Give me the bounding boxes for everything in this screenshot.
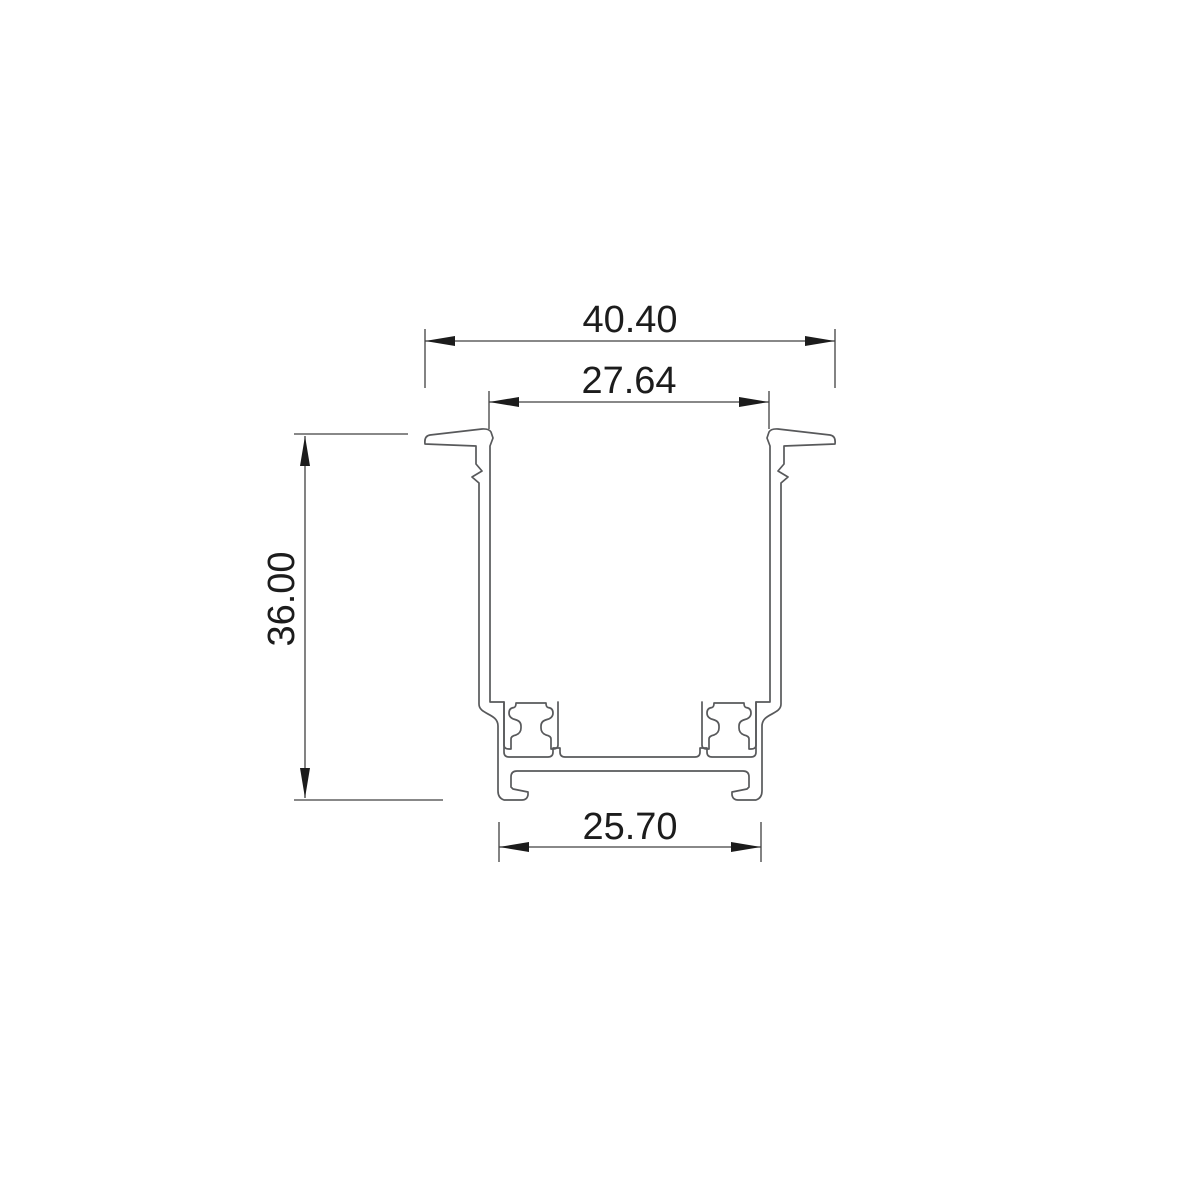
arrowhead-left-icon xyxy=(425,336,455,346)
drawing-canvas: 40.40 27.64 36.00 25.70 xyxy=(0,0,1200,1200)
screw-port-left xyxy=(504,702,558,749)
dimension-label-opening-width: 27.64 xyxy=(581,360,676,402)
arrowhead-left-icon xyxy=(489,397,519,407)
profile-main-outline xyxy=(425,429,835,800)
arrowhead-right-icon xyxy=(731,842,761,852)
dimension-label-base-width: 25.70 xyxy=(582,806,677,848)
arrowhead-right-icon xyxy=(739,397,769,407)
dimension-overall-height: 36.00 xyxy=(261,434,443,800)
profile-dimension-drawing: 40.40 27.64 36.00 25.70 xyxy=(0,0,1200,1200)
arrowhead-up-icon xyxy=(300,436,310,466)
dimension-label-overall-height: 36.00 xyxy=(261,551,303,646)
dimension-base-width: 25.70 xyxy=(499,806,761,862)
dimension-label-overall-width: 40.40 xyxy=(582,299,677,341)
profile-cross-section xyxy=(425,429,835,800)
arrowhead-right-icon xyxy=(805,336,835,346)
screw-port-right xyxy=(702,702,756,749)
arrowhead-left-icon xyxy=(499,842,529,852)
dimension-opening-width: 27.64 xyxy=(489,360,769,429)
arrowhead-down-icon xyxy=(300,768,310,798)
